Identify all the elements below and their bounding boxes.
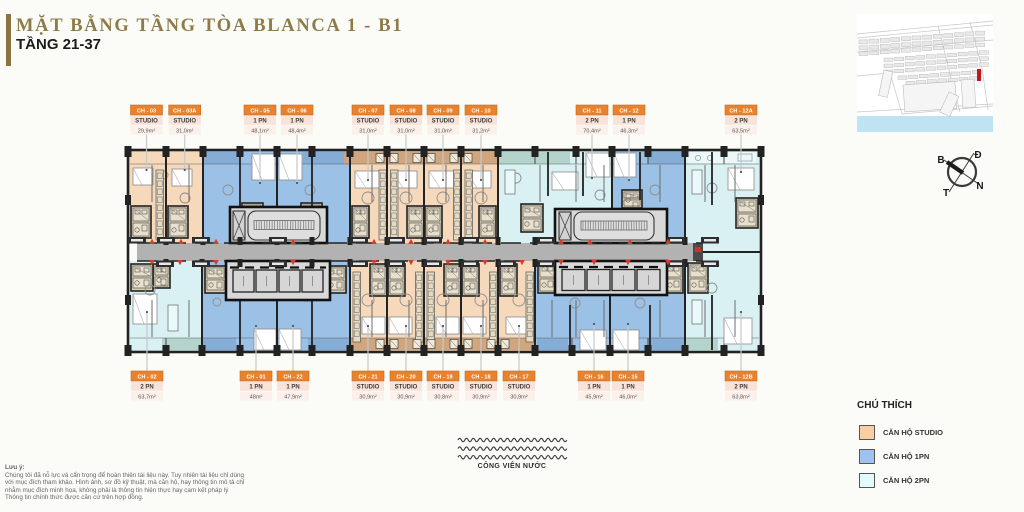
svg-text:47,9m²: 47,9m² [284, 394, 302, 400]
svg-text:70,4m²: 70,4m² [583, 128, 601, 134]
svg-text:STUDIO: STUDIO [395, 385, 418, 391]
svg-text:CH - 16: CH - 16 [584, 374, 603, 380]
svg-text:B: B [937, 155, 944, 166]
svg-text:CH - 12A: CH - 12A [729, 108, 752, 114]
svg-text:1 PN: 1 PN [249, 385, 262, 391]
svg-text:CH - 12: CH - 12 [619, 108, 638, 114]
svg-text:CH - 18: CH - 18 [471, 374, 490, 380]
svg-text:STUDIO: STUDIO [508, 385, 531, 391]
svg-text:STUDIO: STUDIO [357, 385, 380, 391]
svg-text:CH - 19: CH - 19 [433, 374, 452, 380]
svg-text:CH - 17: CH - 17 [509, 374, 528, 380]
svg-text:45,9m²: 45,9m² [585, 394, 603, 400]
svg-text:48m²: 48m² [250, 394, 263, 400]
svg-text:CH - 07: CH - 07 [358, 108, 377, 114]
svg-text:1 PN: 1 PN [290, 119, 303, 125]
svg-text:CH - 03A: CH - 03A [173, 108, 196, 114]
svg-text:CH - 22: CH - 22 [283, 374, 302, 380]
svg-text:CH - 21: CH - 21 [358, 374, 377, 380]
svg-text:STUDIO: STUDIO [135, 119, 158, 125]
svg-text:CH - 06: CH - 06 [287, 108, 306, 114]
svg-text:63,7m²: 63,7m² [138, 394, 156, 400]
svg-text:31,0m²: 31,0m² [434, 128, 452, 134]
svg-text:2 PN: 2 PN [734, 385, 747, 391]
svg-text:Đ: Đ [974, 150, 981, 161]
svg-text:STUDIO: STUDIO [357, 119, 380, 125]
svg-text:STUDIO: STUDIO [470, 119, 493, 125]
svg-text:1 PN: 1 PN [286, 385, 299, 391]
svg-text:STUDIO: STUDIO [432, 119, 455, 125]
svg-text:31,0m²: 31,0m² [176, 128, 194, 134]
svg-text:STUDIO: STUDIO [395, 119, 418, 125]
svg-text:CH - 15: CH - 15 [618, 374, 637, 380]
svg-text:CH - 09: CH - 09 [433, 108, 452, 114]
svg-text:1 PN: 1 PN [622, 119, 635, 125]
svg-text:30,9m²: 30,9m² [510, 394, 528, 400]
svg-text:30,9m²: 30,9m² [359, 394, 377, 400]
svg-text:STUDIO: STUDIO [432, 385, 455, 391]
svg-text:CH - 10: CH - 10 [471, 108, 490, 114]
svg-text:31,0m²: 31,0m² [359, 128, 377, 134]
svg-text:2 PN: 2 PN [585, 119, 598, 125]
svg-text:30,9m²: 30,9m² [472, 394, 490, 400]
svg-text:2 PN: 2 PN [734, 119, 747, 125]
svg-text:46,3m²: 46,3m² [620, 128, 638, 134]
svg-text:46,0m²: 46,0m² [619, 394, 637, 400]
svg-text:30,9m²: 30,9m² [397, 394, 415, 400]
svg-text:2 PN: 2 PN [140, 385, 153, 391]
svg-text:CH - 01: CH - 01 [246, 374, 265, 380]
svg-text:1 PN: 1 PN [621, 385, 634, 391]
svg-text:CH - 03: CH - 03 [137, 108, 156, 114]
svg-text:STUDIO: STUDIO [470, 385, 493, 391]
svg-text:CH - 02: CH - 02 [137, 374, 156, 380]
svg-text:T: T [943, 188, 949, 199]
svg-text:63,5m²: 63,5m² [732, 128, 750, 134]
svg-text:48,1m²: 48,1m² [251, 128, 269, 134]
svg-text:63,8m²: 63,8m² [732, 394, 750, 400]
svg-text:CH - 08: CH - 08 [396, 108, 415, 114]
svg-text:1 PN: 1 PN [587, 385, 600, 391]
svg-text:1 PN: 1 PN [253, 119, 266, 125]
svg-text:29,9m²: 29,9m² [138, 128, 156, 134]
svg-text:CH - 11: CH - 11 [583, 108, 602, 114]
svg-text:N: N [976, 181, 983, 192]
svg-text:CÔNG VIÊN NƯỚC: CÔNG VIÊN NƯỚC [478, 461, 547, 470]
svg-text:CH - 20: CH - 20 [396, 374, 415, 380]
svg-text:31,2m²: 31,2m² [472, 128, 490, 134]
svg-text:30,8m²: 30,8m² [434, 394, 452, 400]
svg-text:48,4m²: 48,4m² [288, 128, 306, 134]
svg-text:STUDIO: STUDIO [173, 119, 196, 125]
svg-text:CH - 12B: CH - 12B [729, 374, 752, 380]
svg-text:31,0m²: 31,0m² [397, 128, 415, 134]
svg-text:CH - 05: CH - 05 [250, 108, 269, 114]
